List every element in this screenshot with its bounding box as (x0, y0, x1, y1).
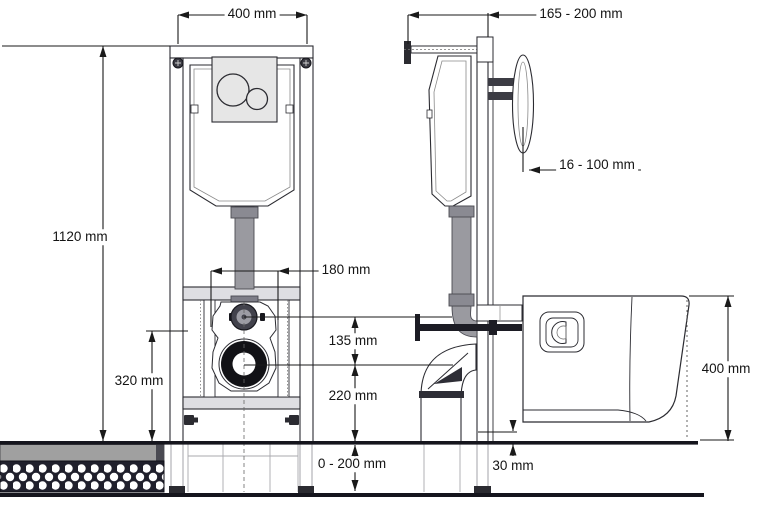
finished-floor-line (0, 441, 698, 445)
dim-pan-clearance-label: 30 mm (489, 458, 536, 474)
dim-wall-distance-label: 165 - 200 mm (536, 6, 625, 22)
dim-pan-height-label: 400 mm (699, 361, 754, 377)
actuator-plate-side (488, 55, 534, 153)
mounting-studs (184, 415, 299, 425)
flush-button-large-icon (217, 74, 249, 106)
drainage-grate (0, 461, 164, 492)
dim-fixing-centres-label: 180 mm (319, 262, 374, 278)
flush-plate (212, 57, 277, 122)
structural-floor-line (0, 493, 704, 497)
toilet-bowl-side (523, 296, 689, 439)
dim-floor-buildup-label: 0 - 200 mm (315, 456, 389, 472)
flush-pipe-side (449, 206, 477, 337)
side-view (404, 37, 689, 492)
flush-button-small-icon (247, 89, 268, 110)
waste-elbow-side (419, 344, 476, 492)
dim-frame-width-label: 400 mm (225, 6, 280, 22)
frame-side-rail (477, 37, 493, 487)
pan-inlet-connector (477, 305, 522, 321)
dim-inlet-height-label: 320 mm (112, 373, 167, 389)
front-view (170, 46, 313, 492)
cistern-side (427, 56, 471, 206)
dim-flush-to-waste-label: 135 mm (326, 333, 381, 349)
screed-layer (0, 445, 164, 462)
technical-drawing-page: 400 mm 165 - 200 mm 1120 mm 180 mm 135 m… (0, 0, 782, 531)
dim-frame-height-label: 1120 mm (49, 229, 110, 245)
dim-wall-distance-lines (408, 12, 537, 45)
dim-waste-height-label: 220 mm (326, 388, 381, 404)
frame-feet-front (171, 443, 312, 492)
installation-frame-drawing (0, 0, 782, 531)
dim-wall-lining-label: 16 - 100 mm (556, 157, 638, 173)
